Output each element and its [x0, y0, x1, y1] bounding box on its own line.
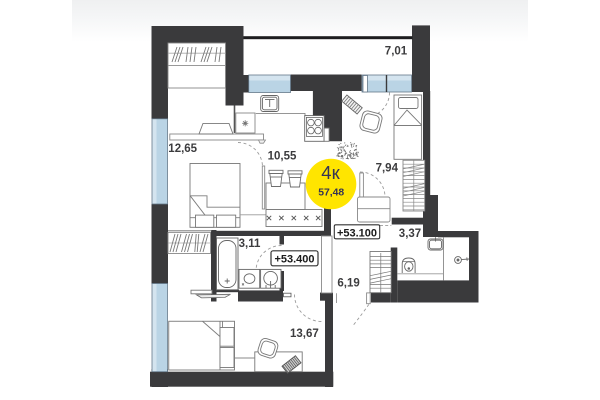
svg-text:3,37: 3,37	[399, 228, 421, 240]
svg-text:7,01: 7,01	[385, 46, 408, 58]
svg-text:4к: 4к	[321, 162, 340, 183]
svg-text:7,94: 7,94	[376, 162, 399, 174]
svg-text:+53.400: +53.400	[274, 253, 314, 265]
svg-text:10,55: 10,55	[268, 151, 297, 163]
svg-text:+53.100: +53.100	[337, 227, 377, 239]
svg-text:57,48: 57,48	[318, 187, 344, 198]
svg-text:3,11: 3,11	[239, 238, 261, 250]
svg-text:6,19: 6,19	[337, 278, 359, 290]
svg-text:12,65: 12,65	[168, 143, 197, 155]
svg-text:13,67: 13,67	[290, 328, 319, 340]
